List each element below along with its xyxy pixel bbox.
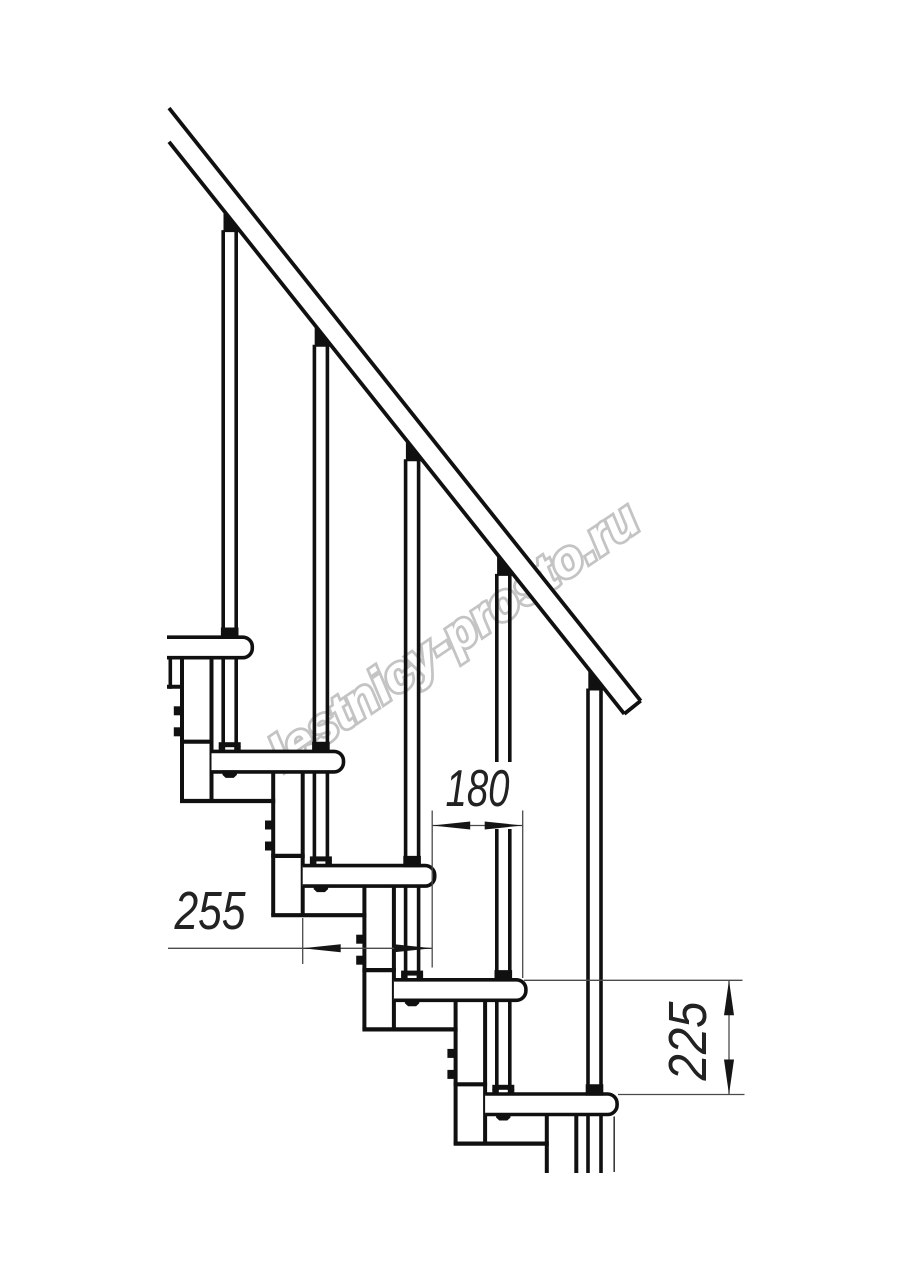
- svg-text:255: 255: [174, 881, 247, 941]
- svg-text:225: 225: [658, 1001, 718, 1082]
- svg-text:180: 180: [446, 760, 510, 818]
